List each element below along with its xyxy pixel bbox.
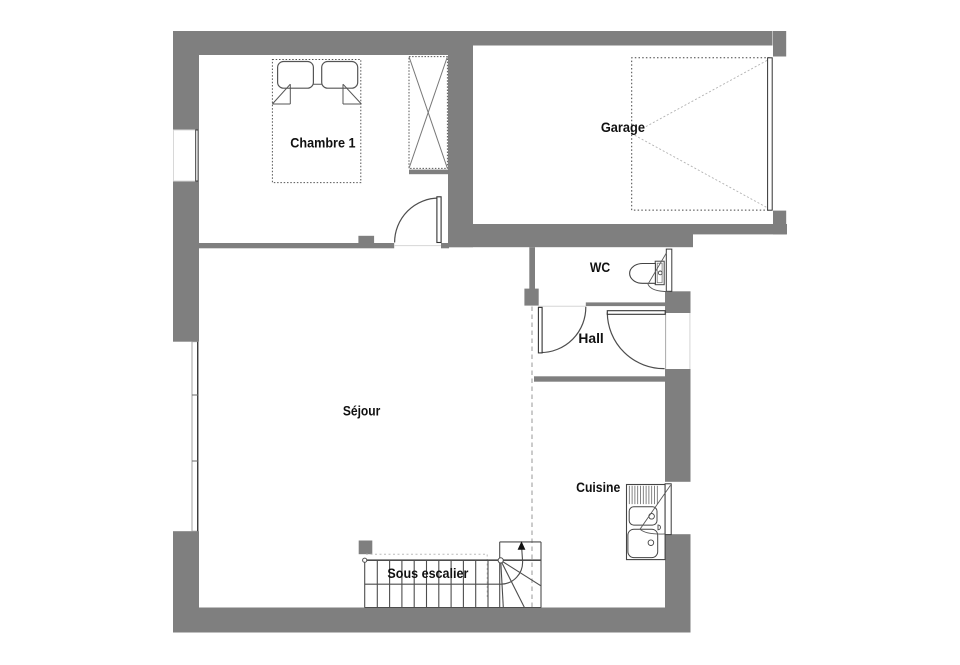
- svg-text:Garage: Garage: [601, 119, 645, 135]
- svg-text:Sous escalier: Sous escalier: [387, 565, 468, 581]
- svg-text:Hall: Hall: [578, 330, 603, 346]
- svg-text:Cuisine: Cuisine: [576, 479, 620, 495]
- svg-text:Chambre 1: Chambre 1: [290, 135, 355, 151]
- svg-text:WC: WC: [590, 259, 610, 275]
- svg-text:Séjour: Séjour: [343, 404, 381, 419]
